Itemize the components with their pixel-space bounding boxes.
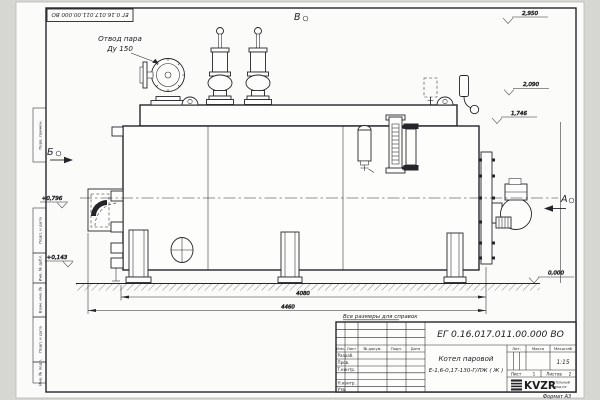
role-tkontr: Т.контр. <box>337 367 356 372</box>
col-list: Лист <box>347 347 357 351</box>
product-model: Е-1,6-0,17-130-Г/ЛЖ ( Ж ) <box>429 368 504 374</box>
scale-value: 1:15 <box>556 360 569 366</box>
side-cell-podp-data-1: Подп. и дата <box>38 217 43 244</box>
callout-line1: Отвод пара <box>98 34 142 43</box>
reference-note: Все размеры для справок <box>343 314 418 320</box>
role-razrab: Разраб. <box>338 353 354 358</box>
elevation-1746: 1,746 <box>511 111 527 117</box>
side-cell-perv-primen: Перв. примен. <box>38 120 43 149</box>
dimension-outer: 4460 <box>281 304 295 310</box>
scale-label: Масштаб <box>554 346 573 351</box>
view-marker-left: Б <box>47 147 54 158</box>
side-cell-vzam-inv: Взам. инв. № <box>38 287 43 313</box>
lit-label: Лит. <box>512 346 521 351</box>
valve-handwheel <box>143 62 147 88</box>
role-utv: Утв. <box>338 387 347 392</box>
view-marker-right: А <box>560 194 568 205</box>
product-name: Котел паровой <box>439 355 494 363</box>
side-cell-podp-data-2: Подп. и дата <box>38 326 43 353</box>
sensor-cylinder <box>460 76 469 97</box>
callout-line2: Ду 150 <box>106 44 133 53</box>
logo-caption-2: ЗАВОД РФ <box>551 385 567 389</box>
valve-stem <box>147 72 153 78</box>
sheets-value: 2 <box>569 372 572 377</box>
top-stamp-number: ЕГ 0.16.017.011.00.000 ВО <box>51 11 129 17</box>
ground <box>76 284 540 291</box>
side-cell-inv-podl: Инв. № подл. <box>38 359 43 386</box>
col-izm: Изм. <box>336 347 345 351</box>
sheet-value: 1 <box>533 372 536 377</box>
role-prov: Пров. <box>338 360 350 365</box>
doc-number: ЕГ 0.16.017.011.00.000 ВО <box>437 329 564 340</box>
elevation-0000: 0,000 <box>548 271 564 277</box>
role-nkontr: Н.контр. <box>338 381 356 386</box>
top-stamp: ЕГ 0.16.017.011.00.000 ВО <box>47 9 133 22</box>
boiler-drawing-sheet: Перв. примен. Подп. и дата Инв. № дубл. … <box>0 0 600 400</box>
title-block: ЕГ 0.16.017.011.00.000 ВО Изм. Лист № до… <box>336 322 576 392</box>
drawing-page: Перв. примен. Подп. и дата Инв. № дубл. … <box>0 0 600 400</box>
col-data: Дата <box>411 347 421 351</box>
drum-top-casing <box>140 105 457 126</box>
view-marker-top: В <box>294 12 301 23</box>
dimension-inner: 4080 <box>296 291 310 297</box>
mass-label: Масса <box>532 346 544 351</box>
note-text: Все размеры для справок <box>343 314 418 320</box>
elevation-left-upper: +0,796 <box>42 196 63 202</box>
col-podp: Подп. <box>391 347 402 351</box>
format-label: Формат А3 <box>543 394 571 400</box>
sheets-label: Листов <box>546 372 562 377</box>
elevation-2090: 2,090 <box>523 82 539 88</box>
logo-caption-1: КОТЕЛЬНЫЙ <box>551 380 570 385</box>
elevation-left-lower: +0,143 <box>47 255 68 261</box>
col-dokum: № докум. <box>363 347 381 351</box>
side-cell-inv-dubl: Инв. № дубл. <box>38 255 43 282</box>
manhole <box>171 238 193 263</box>
elevation-2950: 2,950 <box>522 11 538 17</box>
sheet-label: Лист <box>511 372 522 377</box>
